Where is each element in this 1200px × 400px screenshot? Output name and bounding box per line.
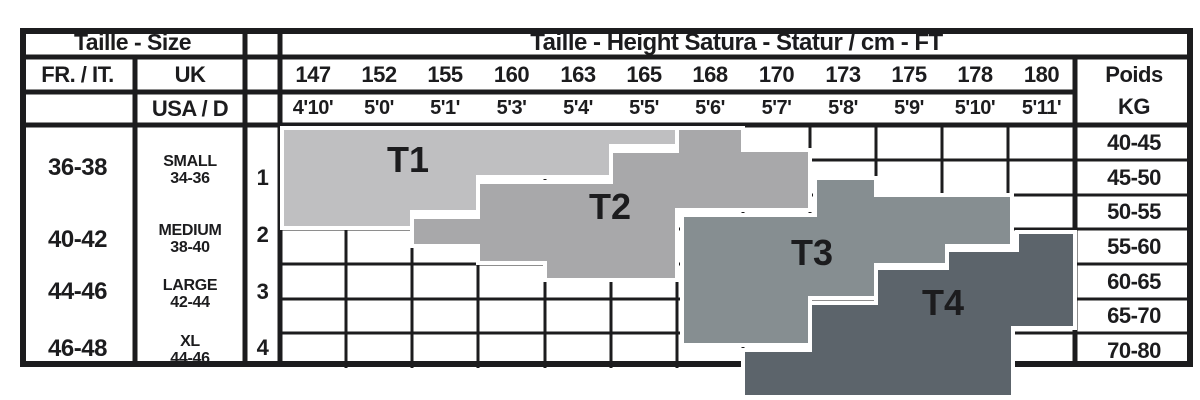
height-ft-cell: 5'6'	[677, 92, 743, 125]
height-ft-cell: 5'9'	[876, 92, 942, 125]
size-uk-range: 34-36	[170, 170, 209, 187]
size-usa-num: 1	[245, 161, 280, 195]
weight-cell: 40-45	[1075, 125, 1193, 160]
size-uk: LARGE 42-44	[135, 276, 245, 312]
size-fr-it: 46-48	[20, 332, 135, 366]
band-label-t4: T4	[922, 282, 964, 324]
col-header-fr-it: FR. / IT.	[20, 57, 135, 92]
height-ft-cell: 5'11'	[1008, 92, 1075, 125]
height-cm-cell: 168	[677, 57, 743, 92]
size-uk-label: SMALL	[163, 153, 217, 170]
weight-cell: 45-50	[1075, 160, 1193, 195]
height-cm-cell: 180	[1008, 57, 1075, 92]
height-cm-cell: 170	[743, 57, 810, 92]
size-usa-num: 2	[245, 218, 280, 252]
height-cm-cell: 165	[611, 57, 677, 92]
height-ft-cell: 5'1'	[412, 92, 478, 125]
size-uk-range: 44-46	[170, 350, 209, 367]
height-ft-cell: 5'8'	[810, 92, 876, 125]
height-ft-cell: 4'10'	[280, 92, 346, 125]
height-cm-cell: 175	[876, 57, 942, 92]
weight-cell: 60-65	[1075, 264, 1193, 299]
size-header: Taille - Size	[20, 28, 245, 57]
height-ft-cell: 5'0'	[346, 92, 412, 125]
height-ft-cell: 5'4'	[545, 92, 611, 125]
height-cm-cell: 160	[478, 57, 545, 92]
col-header-uk: UK	[135, 57, 245, 92]
size-usa-num: 3	[245, 275, 280, 309]
size-uk-label: LARGE	[163, 277, 218, 294]
size-fr-it: 44-46	[20, 275, 135, 309]
weight-col-label: Poids	[1075, 57, 1193, 92]
size-uk-label: MEDIUM	[158, 222, 221, 239]
size-fr-it: 36-38	[20, 151, 135, 185]
height-ft-cell: 5'10'	[942, 92, 1008, 125]
size-chart: Taille - Size Taille - Height Satura - S…	[0, 0, 1200, 400]
weight-cell: 65-70	[1075, 299, 1193, 333]
size-uk: SMALL 34-36	[135, 152, 245, 188]
height-ft-cell: 5'5'	[611, 92, 677, 125]
height-header: Taille - Height Satura - Statur / cm - F…	[280, 28, 1193, 57]
band-label-t2: T2	[589, 186, 631, 228]
weight-cell: 70-80	[1075, 333, 1193, 368]
col-header-usa: USA / D	[135, 92, 245, 125]
weight-cell: 55-60	[1075, 229, 1193, 264]
size-uk-range: 42-44	[170, 294, 209, 311]
size-uk-label: XL	[180, 333, 200, 350]
height-ft-cell: 5'3'	[478, 92, 545, 125]
weight-col-unit: KG	[1075, 90, 1193, 123]
height-cm-cell: 163	[545, 57, 611, 92]
weight-cell: 50-55	[1075, 195, 1193, 229]
size-uk-range: 38-40	[170, 239, 209, 256]
size-uk: XL 44-46	[135, 332, 245, 368]
height-cm-cell: 155	[412, 57, 478, 92]
size-fr-it: 40-42	[20, 223, 135, 257]
height-cm-cell: 178	[942, 57, 1008, 92]
height-ft-cell: 5'7'	[743, 92, 810, 125]
band-label-t1: T1	[387, 139, 429, 181]
height-cm-cell: 173	[810, 57, 876, 92]
height-cm-cell: 152	[346, 57, 412, 92]
height-cm-cell: 147	[280, 57, 346, 92]
size-usa-num: 4	[245, 331, 280, 365]
band-label-t3: T3	[791, 232, 833, 274]
size-uk: MEDIUM 38-40	[135, 221, 245, 257]
